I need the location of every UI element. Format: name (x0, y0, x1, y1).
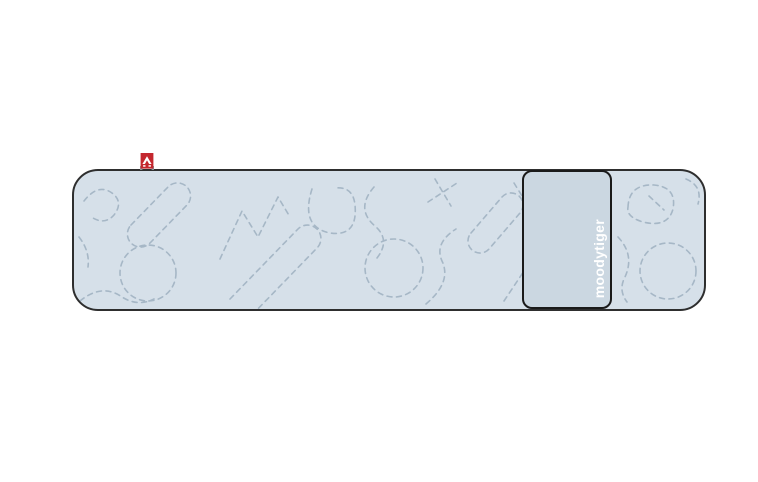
moodytiger-logo-icon (140, 153, 154, 170)
brand-panel: moodytiger (522, 170, 612, 309)
brand-wordmark: moodytiger (591, 219, 607, 298)
brand-tag (140, 153, 154, 170)
product-image: moodytiger (0, 0, 758, 482)
